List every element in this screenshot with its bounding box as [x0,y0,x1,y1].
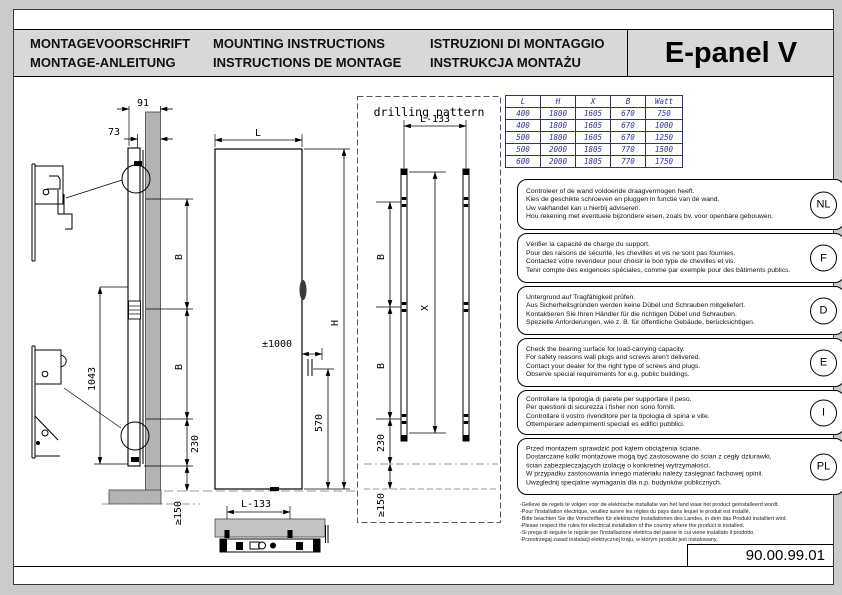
wall-section [146,112,161,491]
dim-x: X [420,305,431,311]
lang-badge-fr: F [810,245,837,272]
col-header: L [506,96,541,108]
dim-cable-length: ±1000 [262,339,292,350]
lang-badge-pl: PL [810,453,837,480]
mounting-rail-right [463,169,469,441]
floor-section [109,490,161,504]
mounting-rail-left [401,169,407,441]
title-line: MOUNTING INSTRUCTIONS [213,34,401,53]
header-title-nl-de: MONTAGEVOORSCHRIFT MONTAGE-ANLEITUNG [30,34,190,72]
bottom-view: L-133 [215,499,328,552]
table-row: 500200018057701500 [506,144,683,156]
dim-b-lower-pattern: B [376,363,387,369]
table-row: 500180016056701250 [506,132,683,144]
instruction-box-it: Controllare la tipologia di parete per s… [517,390,842,435]
lang-badge-de: D [810,297,837,324]
title-line: MONTAGE-ANLEITUNG [30,53,190,72]
instruction-text-en: Check the bearing surface for load-carry… [526,345,804,379]
lang-badge-nl: NL [810,191,837,218]
product-name: E-panel V [627,30,834,76]
technical-drawing: 91 73 B B 230 ≥150 [14,76,514,566]
instruction-box-fr: Vérifier la capacité de charge du suppor… [517,233,842,283]
panel-front [215,149,302,489]
dim-230-pattern: 230 [376,434,387,452]
table-row: 400180016056701000 [506,120,683,132]
col-header: B [611,96,646,108]
instruction-text-it: Controllare la tipologia di parete per s… [526,395,804,429]
dim-min150: ≥150 [173,501,184,525]
dim-b-upper: B [174,254,185,260]
main-content: 91 73 B B 230 ≥150 [14,76,833,567]
document-page: MONTAGEVOORSCHRIFT MONTAGE-ANLEITUNG MOU… [13,9,834,585]
wall-top-view [215,519,325,537]
col-header: X [576,96,611,108]
front-view: L H ±1000 570 [215,128,350,491]
instruction-text-fr: Vérifier la capacité de charge du suppor… [526,241,804,275]
thermostat-knob [300,280,307,300]
lang-badge-en: E [810,349,837,376]
dim-1043: 1043 [87,367,98,391]
dim-73: 73 [108,127,120,138]
instruction-text-nl: Controleer of de wand voldoende draagver… [526,187,804,221]
dim-570: 570 [314,414,325,432]
title-line: INSTRUCTIONS DE MONTAGE [213,53,401,72]
instruction-text-pl: Przed montażem sprawdzić pod kątem obcią… [526,445,804,488]
dim-l: L [255,128,261,139]
header-title-it-pl: ISTRUZIONI DI MONTAGGIO INSTRUKCJA MONTA… [430,34,605,72]
lang-badge-it: I [810,399,837,426]
header-title-en-fr: MOUNTING INSTRUCTIONS INSTRUCTIONS DE MO… [213,34,401,72]
col-header: Watt [646,96,683,108]
drilling-pattern: drilling pattern [358,97,501,523]
doc-number: 90.00.99.01 [687,544,833,566]
right-column: L H X B Watt 40018001605670750 400180016… [503,76,834,566]
instruction-box-nl: Controleer of de wand voldoende draagver… [517,179,842,230]
title-line: ISTRUZIONI DI MONTAGGIO [430,34,605,53]
dim-230: 230 [190,435,201,453]
dim-h: H [330,320,341,326]
table-row: 600200018057701750 [506,156,683,168]
dim-91: 91 [137,98,149,109]
side-view: 91 73 B B 230 ≥150 [32,98,357,525]
electrical-footnotes: -Gelieve de regels te volgen voor de ele… [520,502,832,544]
dim-b-lower: B [174,364,185,370]
header: MONTAGEVOORSCHRIFT MONTAGE-ANLEITUNG MOU… [14,29,833,77]
dim-l133-pattern: L-133 [420,114,450,125]
spec-table: L H X B Watt 40018001605670750 400180016… [505,95,683,168]
power-cable [308,359,312,376]
dim-min150-pattern: ≥150 [376,493,387,517]
dim-l133-bottom: L-133 [241,499,271,510]
instruction-box-pl: Przed montażem sprawdzić pod kątem obcią… [517,438,842,495]
table-row: 40018001605670750 [506,108,683,120]
title-line: MONTAGEVOORSCHRIFT [30,34,190,53]
title-line: INSTRUKCJA MONTAŻU [430,53,605,72]
side-view-detail-top [32,164,122,261]
dim-b-upper-pattern: B [376,254,387,260]
side-view-detail-bottom [32,346,121,458]
instruction-box-de: Untergrund auf Tragfähigkeit prüfen. Aus… [517,286,842,335]
col-header: H [541,96,576,108]
instruction-text-de: Untergrund auf Tragfähigkeit prüfen. Aus… [526,293,804,327]
spec-header-row: L H X B Watt [506,96,683,108]
instruction-box-en: Check the bearing surface for load-carry… [517,338,842,387]
